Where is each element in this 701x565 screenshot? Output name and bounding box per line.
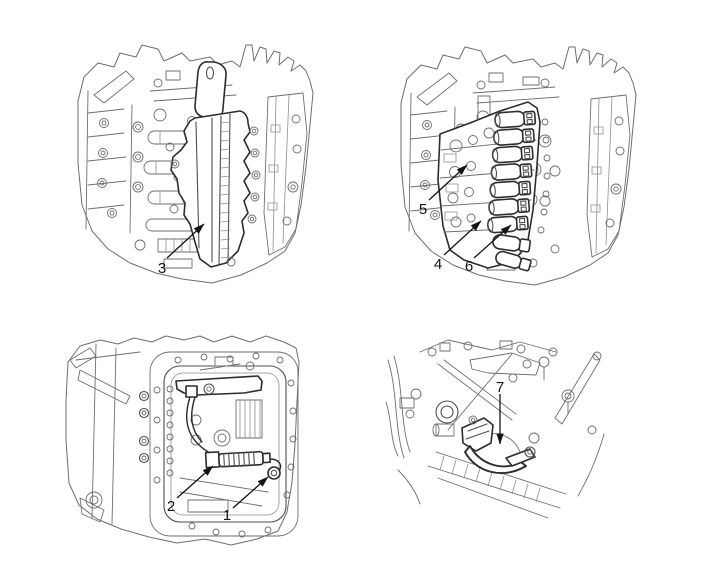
panel-top-right: 5 4 6	[401, 47, 636, 285]
case-opening-art	[66, 336, 299, 545]
callout-3-label: 3	[158, 260, 166, 277]
callout-1-label: 1	[223, 507, 231, 524]
callout-2-label: 2	[167, 498, 175, 515]
panel-bottom-right: 7	[386, 340, 604, 518]
callout-6-label: 6	[465, 258, 473, 275]
transaxle-side-art	[386, 340, 604, 518]
panel-bottom-left: 2 1	[66, 336, 299, 545]
callout-7-label: 7	[496, 379, 504, 396]
callout-4-label: 4	[434, 256, 442, 273]
diagram-canvas: 3	[0, 0, 701, 565]
manual-control-lever-part	[462, 416, 535, 473]
diagram-page: 3	[0, 0, 701, 565]
panel-top-left: 3	[78, 45, 313, 283]
callout-5-label: 5	[419, 201, 427, 218]
